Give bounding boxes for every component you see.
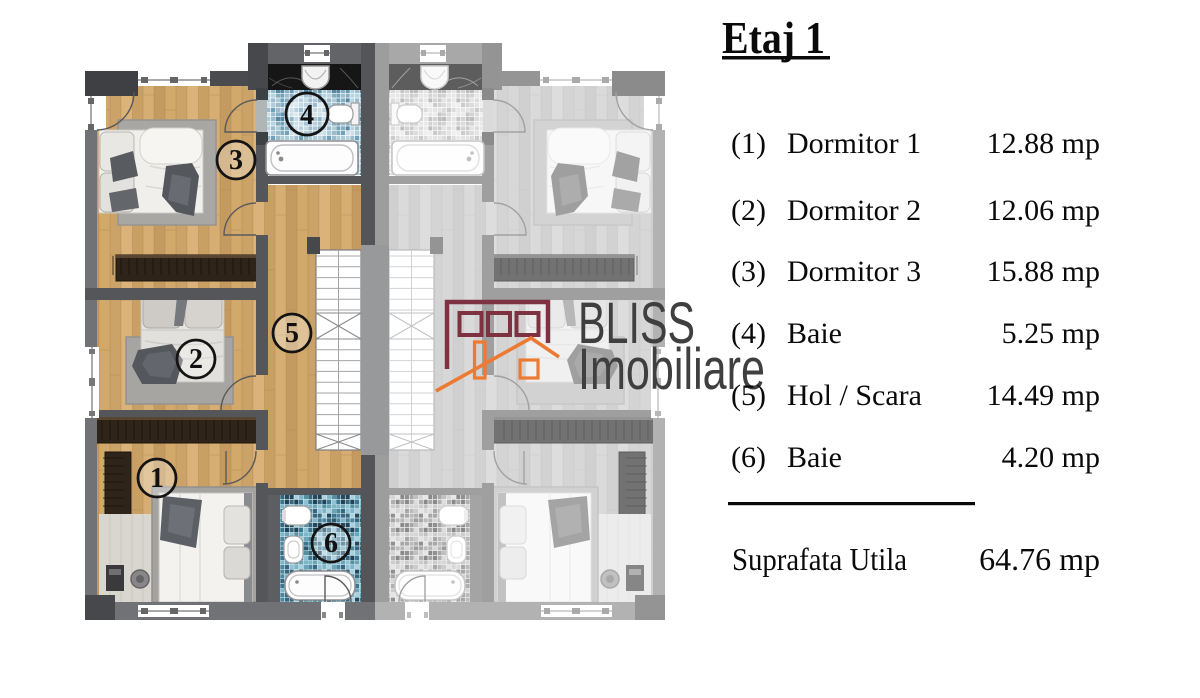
svg-text:4: 4 [300,100,314,131]
svg-text:4.20 mp: 4.20 mp [1002,441,1100,474]
svg-text:(5): (5) [731,379,766,412]
svg-text:Hol / Scara: Hol / Scara [787,379,922,412]
svg-text:Dormitor 2: Dormitor 2 [787,194,921,227]
svg-text:3: 3 [229,145,243,176]
svg-text:12.06 mp: 12.06 mp [987,194,1100,227]
svg-text:(6): (6) [731,441,766,474]
svg-text:12.88 mp: 12.88 mp [987,127,1100,160]
svg-text:6: 6 [324,528,338,559]
svg-text:5: 5 [285,318,299,349]
svg-text:Baie: Baie [787,317,842,350]
svg-text:(3): (3) [731,255,766,288]
svg-text:(2): (2) [731,194,766,227]
svg-text:64.76 mp: 64.76 mp [979,541,1100,577]
svg-text:2: 2 [189,344,203,375]
svg-text:Dormitor 3: Dormitor 3 [787,255,921,288]
svg-text:15.88 mp: 15.88 mp [987,255,1100,288]
svg-text:Suprafata Utila: Suprafata Utila [732,541,907,577]
svg-text:(1): (1) [731,127,766,160]
svg-text:Etaj 1: Etaj 1 [722,13,825,63]
svg-text:1: 1 [150,463,164,494]
svg-text:(4): (4) [731,317,766,350]
svg-text:14.49 mp: 14.49 mp [987,379,1100,412]
svg-text:5.25 mp: 5.25 mp [1002,317,1100,350]
svg-text:Baie: Baie [787,441,842,474]
svg-text:Dormitor 1: Dormitor 1 [787,127,921,160]
